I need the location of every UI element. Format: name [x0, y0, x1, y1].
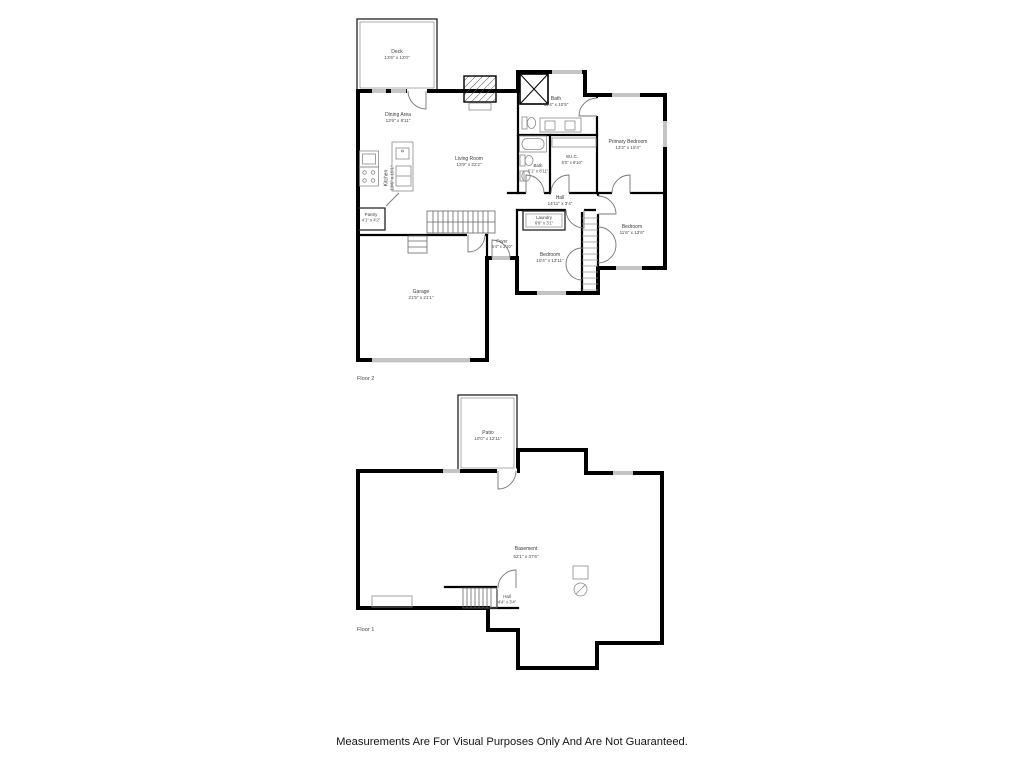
room-dims-hall-f1: 4'4" x 3'4": [498, 600, 517, 605]
pantry-door-leaf: [386, 193, 399, 206]
room-dims-bedroom-mid: 10'4" x 13'11": [536, 258, 564, 263]
floor1-door-arcs: [498, 471, 516, 588]
dining-window-2: [391, 89, 406, 93]
room-name-bath-small: Bath: [533, 163, 543, 168]
room-dims-primary-bedroom: 13'2" x 15'4": [615, 145, 641, 150]
tub-inner: [522, 139, 544, 150]
staircase-main: [427, 211, 495, 233]
floor1-walls: [358, 450, 662, 668]
room-dims-living: 13'9" x 22'2": [456, 162, 482, 167]
vanity-double: [540, 118, 581, 132]
hearth: [469, 103, 491, 110]
bath-window: [552, 70, 582, 74]
room-name-wic: W.I.C.: [566, 154, 578, 159]
hall-door-swing: [498, 570, 516, 588]
patio-door-gap: [497, 469, 517, 474]
closet-shelving: [582, 218, 598, 290]
deck-door-swing: [408, 91, 426, 109]
bedroom-mid-closet-swing-a: [566, 248, 582, 264]
burner-1: [363, 171, 367, 175]
burner-3: [363, 179, 367, 183]
bedroom-mid-door-gap: [566, 208, 584, 212]
floor1-label: Floor 1: [357, 627, 374, 633]
wic-shelf: [552, 138, 596, 147]
floor2-label: Floor 2: [357, 376, 374, 382]
burner-4: [371, 179, 375, 183]
room-dims-garage: 21'5" x 21'1": [408, 295, 434, 300]
floor2-labels: Deck 13'6" x 12'0" Dining Area 13'6" x 8…: [357, 49, 647, 382]
kitchen-label-rotated: Kitchen 13'6" x 15'1": [384, 165, 395, 191]
room-name-pantry: Pantry: [365, 212, 378, 217]
egress-window-well: [372, 596, 412, 607]
toilet-tank: [522, 117, 527, 129]
garage-steps: [408, 236, 427, 253]
vanity-sink-left: [545, 121, 555, 130]
toilet-main-bath: [522, 117, 536, 129]
primary-side-window: [663, 121, 667, 147]
shower-chase-xbox: [520, 74, 548, 104]
island-faucet: [402, 150, 404, 152]
fan-slash: [576, 585, 586, 595]
garage-entry-door-swing: [468, 235, 485, 252]
kitchen-counter-left: [360, 151, 379, 186]
bath-small-door-gap: [526, 191, 544, 195]
garage-entry-door-gap: [467, 233, 485, 237]
primary-top-window: [612, 93, 640, 97]
front-door: [492, 256, 510, 260]
room-name-laundry: Laundry: [536, 215, 553, 220]
room-dims-patio: 10'0" x 12'11": [474, 436, 502, 441]
counter-sink: [363, 154, 376, 164]
room-dims-laundry: 6'9" x 3'1": [535, 221, 554, 226]
toilet-small-bath: [520, 155, 533, 166]
staircase-basement: [463, 588, 497, 608]
floor2-door-arcs: [386, 91, 630, 280]
bedroom-right-door-swing: [598, 196, 616, 214]
furnace-fan-symbol: [574, 583, 587, 596]
burner-2: [371, 171, 375, 175]
toilet-bowl-2: [525, 156, 533, 166]
deck-door-gap: [407, 89, 427, 94]
toilet-bowl: [527, 118, 535, 129]
wic-door-swing: [551, 175, 569, 193]
floor1-openings: [443, 469, 633, 591]
bath-small-door-swing: [526, 175, 544, 193]
patio-door-swing: [498, 471, 516, 489]
floor-plan-canvas: Deck 13'6" x 12'0" Dining Area 13'6" x 8…: [0, 0, 1024, 768]
basement-stairs-treads: [467, 588, 491, 608]
disclaimer-text: Measurements Are For Visual Purposes Onl…: [336, 736, 688, 748]
hall-door-gap: [497, 586, 516, 590]
bedroom-right-closet-swing-b: [598, 245, 616, 263]
floor2-openings: [372, 70, 667, 362]
floor2-plan: Deck 13'6" x 12'0" Dining Area 13'6" x 8…: [357, 19, 667, 382]
bedroom-mid-closet-swing-b: [566, 264, 582, 280]
primary-door-gap: [612, 191, 630, 195]
room-dims-bedroom-right: 11'6" x 13'6": [620, 230, 645, 235]
room-dims-dining: 13'6" x 8'11": [386, 118, 411, 123]
bedroom-right-window: [616, 266, 642, 270]
room-dims-hall: 14'11" x 3'4": [548, 201, 573, 206]
bath-door-swing: [579, 98, 597, 116]
range: [360, 167, 379, 186]
steps-treads: [408, 241, 427, 247]
room-dims-bath-small: 5'1" x 8'11": [528, 169, 549, 174]
fireplace-chimney: [464, 76, 496, 102]
floor-plan-page: Deck 13'6" x 12'0" Dining Area 13'6" x 8…: [0, 0, 1024, 768]
basement-stairs-frame: [463, 588, 497, 608]
kitchen-island: [392, 142, 413, 191]
floor1-labels: Patio 10'0" x 12'11" Basement 52'1" x 37…: [357, 430, 539, 633]
basement-window-left: [443, 469, 460, 473]
room-dims-kitchen: 13'6" x 15'1": [390, 165, 395, 191]
water-heater-symbol: [573, 566, 588, 579]
toilet-tank-2: [520, 155, 525, 166]
steps-frame: [408, 236, 427, 253]
garage-vehicle-door: [372, 358, 470, 362]
bathtub: [520, 136, 547, 152]
floor1-plan: Patio 10'0" x 12'11" Basement 52'1" x 37…: [357, 395, 662, 668]
room-dims-basement: 52'1" x 37'6": [513, 554, 539, 559]
room-name-basement: Basement: [515, 546, 538, 552]
room-dims-wic: 6'0" x 8'10": [562, 160, 583, 165]
room-dims-bath-main: 11'4" x 10'5": [544, 102, 569, 107]
room-dims-foyer: 5'4" x 3'10": [492, 244, 513, 249]
floor1-exterior-wall: [358, 450, 662, 668]
bath-door-gap: [595, 98, 599, 116]
dining-window: [372, 89, 386, 93]
room-name-foyer: Foyer: [496, 239, 508, 244]
island-counter: [392, 142, 413, 191]
room-dims-pantry: 4'1" x 4'2": [362, 218, 381, 223]
room-name-hall-f1: Hall: [503, 594, 511, 599]
bedroom-right-door-gap: [596, 196, 600, 214]
bedroom-right-closet-swing-a: [598, 227, 616, 245]
vanity-sink-right: [565, 121, 575, 130]
bedroom-mid-window: [537, 291, 566, 295]
basement-window-right: [613, 471, 633, 475]
primary-door-swing: [612, 175, 630, 193]
room-dims-deck: 13'6" x 12'0": [384, 55, 410, 60]
